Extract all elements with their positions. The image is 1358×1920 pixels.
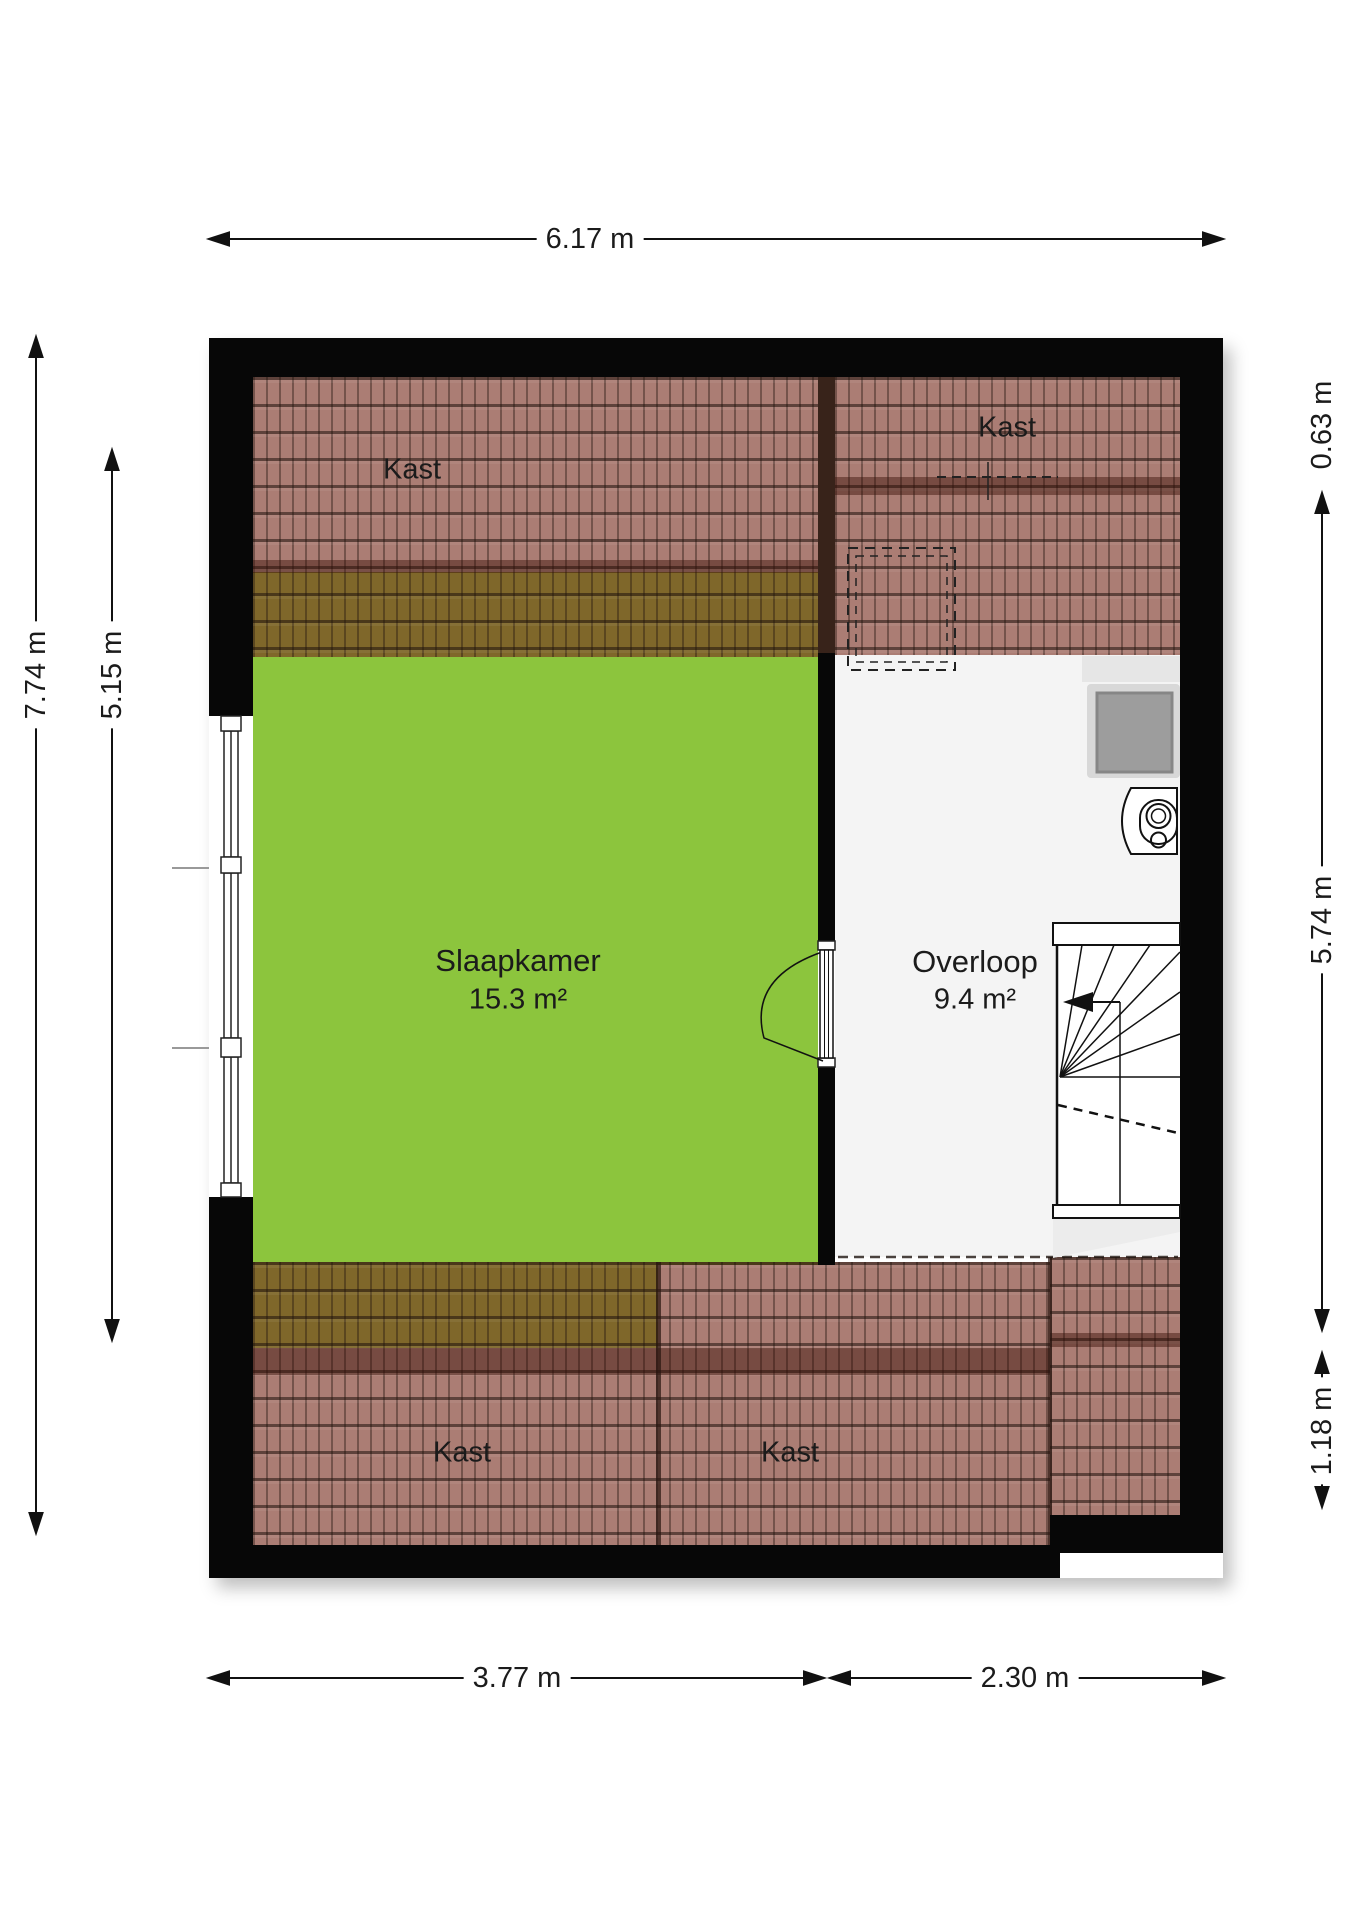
dimension-label-right-bottom: 1.18 m [1304, 1378, 1340, 1485]
closet-label-bottom-left: Kast [433, 1437, 491, 1470]
room-label-slaapkamer: Slaapkamer [435, 943, 600, 979]
roof-seam-bottom-center [656, 1262, 661, 1545]
wall-divider-lower [818, 1067, 835, 1265]
dimension-label-left-outer-height: 7.74 m [18, 622, 54, 729]
closet-label-top-left: Kast [383, 454, 441, 487]
room-slaapkamer-floor [253, 572, 818, 1265]
dimension-label-top-width: 6.17 m [537, 221, 644, 257]
wall-top [209, 338, 1223, 377]
room-area-slaapkamer: 15.3 m² [469, 984, 567, 1017]
dimension-label-right-middle: 5.74 m [1304, 867, 1340, 974]
room-label-overloop: Overloop [912, 944, 1038, 980]
dimension-label-right-top: 0.63 m [1304, 372, 1340, 479]
dimension-label-left-inner-height: 5.15 m [94, 622, 130, 729]
wall-left-lower [209, 1197, 253, 1578]
wall-right [1180, 338, 1223, 1553]
floorplan-canvas: 6.17 m 3.77 m 2.30 m 7.74 m 5.15 m 0.63 … [0, 0, 1358, 1920]
closet-label-top-right: Kast [978, 412, 1036, 445]
roof-bottom-left [253, 1262, 1050, 1545]
roof-ridge-top-left [253, 560, 818, 573]
closet-label-bottom-right: Kast [761, 1437, 819, 1470]
room-area-overloop: 9.4 m² [934, 984, 1016, 1017]
roof-top-left [253, 377, 818, 657]
dimension-label-bottom-right-width: 2.30 m [972, 1660, 1079, 1696]
window-sill-lines [172, 868, 209, 1048]
roof-ridge-bottom-left [253, 1348, 1050, 1375]
roof-bottom-right [1050, 1257, 1180, 1515]
dimension-label-bottom-left-width: 3.77 m [464, 1660, 571, 1696]
roof-ridge-bottom-right [1050, 1333, 1180, 1347]
roof-seam-bottom-right [1048, 1257, 1052, 1545]
wall-left-upper [209, 338, 253, 716]
roof-divider-top [818, 377, 835, 655]
wall-bottom-left [209, 1545, 1060, 1578]
wall-divider-upper [818, 653, 835, 941]
roof-ridge-top-right [835, 477, 1180, 495]
